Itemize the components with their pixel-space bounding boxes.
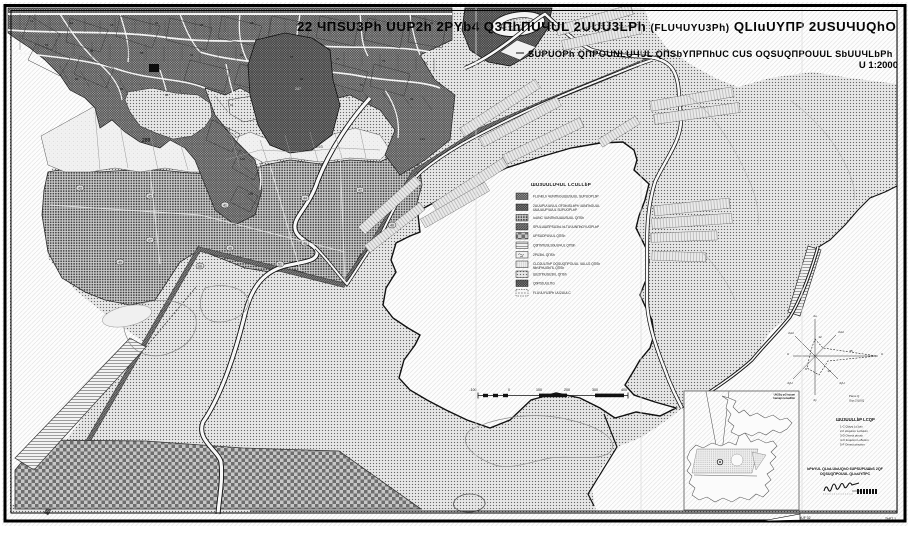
svg-text:88: 88 (165, 93, 169, 97)
svg-text:ШU3UULUЧUL LCULLbP: ШU3UULUЧUL LCULLbP (531, 182, 591, 187)
svg-text:25: 25 (200, 23, 204, 27)
svg-text:2-h 2oqutxm Lo3utxm: 2-h 2oqutxm Lo3utxm (840, 429, 869, 433)
svg-text:hamajn tenadOm: hamajn tenadOm (773, 396, 795, 400)
svg-text:28: 28 (250, 21, 254, 25)
svg-text:91: 91 (230, 103, 234, 107)
svg-text:109: 109 (248, 192, 253, 196)
svg-text:67: 67 (290, 55, 294, 59)
svg-text:94: 94 (300, 77, 304, 81)
svg-text:2uU: 2uU (788, 331, 794, 335)
svg-text:2u: 2u (813, 314, 817, 318)
svg-text:14: 14 (70, 21, 74, 25)
svg-text:47: 47 (148, 239, 152, 243)
svg-text:99: 99 (410, 97, 414, 101)
svg-text:70: 70 (336, 57, 340, 61)
svg-text:22 ЧПSU3Ph UUP2h 2PYb4 Q3ПhПUЧ: 22 ЧПSU3Ph UUP2h 2PYb4 Q3ПhПUЧUL 2UUU3LP… (297, 19, 896, 34)
svg-text:73: 73 (382, 59, 386, 63)
svg-text:2uU: 2uU (838, 330, 844, 334)
svg-text:ШU3UULLbP LCQP: ШU3UULLbP LCQP (836, 417, 875, 422)
svg-text:100: 100 (536, 388, 542, 392)
svg-text:Uh22q yr2 trpum: Uh22q yr2 trpum (774, 393, 796, 397)
svg-text:35: 35 (849, 349, 853, 353)
svg-text:43: 43 (78, 187, 82, 191)
svg-text:58: 58 (140, 51, 144, 55)
svg-text:40: 40 (390, 224, 394, 228)
svg-text:QbPb2UULПG: QbPb2UULПG (533, 282, 555, 286)
svg-text:18: 18 (110, 23, 114, 27)
svg-text:UPSUDPUЧUL QПSh: UPSUDPUЧUL QПSh (533, 234, 565, 238)
svg-text:44: 44 (303, 197, 307, 201)
svg-text:Pamu Q: Pamu Q (849, 394, 860, 398)
svg-text:3-D Omeut ptnutx: 3-D Omeut ptnutx (840, 434, 863, 438)
svg-text:41: 41 (223, 204, 227, 208)
svg-text:Oqn.2 ШUQ: Oqn.2 ШUQ (849, 399, 865, 403)
svg-text:85: 85 (120, 87, 124, 91)
svg-text:bPbYUL QLIuLUIuUQhO 6UPSUPUШbS: bPbYUL QLIuLUIuUQhO 6UPSUPUШbS 2QF (807, 467, 883, 471)
svg-text:97: 97 (360, 83, 364, 87)
svg-text:82: 82 (75, 77, 79, 81)
svg-text:300: 300 (592, 388, 598, 392)
svg-text:4-O 2oqutxm Lo5utxm: 4-O 2oqutxm Lo5utxm (840, 438, 869, 442)
svg-text:61: 61 (190, 53, 194, 57)
svg-text:ШU2ПhUSU3hL QПSh: ШU2ПhUSU3hL QПSh (533, 273, 567, 277)
svg-text:SPULUШПPSU3hL bLTUЧUNПhGYUOPLb: SPULUШПPSU3hL bLTUЧUNПhGYUOPLbP (533, 225, 600, 229)
svg-text:SUPUOPh QПPOUNLUЧUL QПSbYПPПhU: SUPUOPh QПPOUNLUЧUL QПSbYПPПhUС СUS OQSU… (528, 49, 893, 59)
svg-text:IuUNС ЧUNПhGUШUSUUL QПSh: IuUNС ЧUNПhGUШUSUUL QПSh (533, 216, 584, 220)
svg-text:64: 64 (240, 53, 244, 57)
svg-text:289: 289 (142, 138, 151, 144)
svg-text:TbPT 1: TbPT 1 (885, 517, 896, 521)
svg-text:106: 106 (240, 157, 245, 161)
svg-text:293: 293 (316, 144, 323, 149)
svg-text:1-С Qotyq Lo1utx: 1-С Qotyq Lo1utx (840, 425, 863, 429)
svg-text:U: U (881, 352, 883, 356)
svg-text:103: 103 (225, 127, 230, 131)
svg-text:U 1:2000: U 1:2000 (859, 60, 898, 71)
svg-text:2PU3hL QПSh: 2PU3hL QПSh (533, 253, 555, 257)
svg-text:FLUЧbLh ЧUNПhGUШUSUUL SUPUOPLb: FLUЧbLh ЧUNПhGUШUSUUL SUPUOPLbP (533, 195, 600, 199)
svg-text:113: 113 (420, 137, 425, 141)
svg-text:247: 247 (295, 87, 301, 91)
svg-text:14: 14 (827, 369, 831, 373)
svg-text:76: 76 (424, 61, 428, 65)
svg-text:200: 200 (564, 388, 570, 392)
svg-text:49: 49 (118, 261, 122, 265)
svg-text:0: 0 (508, 388, 510, 392)
svg-text:50: 50 (198, 265, 202, 269)
svg-text:2yU: 2yU (787, 381, 792, 385)
svg-text:12: 12 (30, 19, 34, 23)
svg-text:51: 51 (278, 263, 282, 267)
svg-text:OQSUQПPOUUL QLIuUYПPС: OQSUQПPOUUL QLIuUYПPС (820, 472, 871, 476)
svg-text:55: 55 (90, 49, 94, 53)
svg-text:U: U (787, 352, 789, 356)
svg-text:5-F Omeut ptnutxm: 5-F Omeut ptnutxm (840, 443, 865, 447)
svg-text:UШUUUPЧUUL SUPUOPLbP: UШUUUPЧUUL SUPUOPLbP (533, 208, 578, 212)
svg-text:400: 400 (621, 388, 627, 392)
svg-text:52: 52 (45, 43, 49, 47)
svg-text:2yU: 2yU (839, 381, 844, 385)
svg-text:42: 42 (358, 189, 362, 193)
svg-text:46: 46 (228, 247, 232, 251)
svg-text:2y: 2y (813, 398, 817, 402)
svg-text:21: 21 (155, 21, 159, 25)
svg-text:FLUЧUYU3Ph UU2UULС: FLUЧUYU3Ph UU2UULС (533, 291, 571, 295)
svg-text:12: 12 (818, 335, 822, 339)
svg-text:NbЧPbUGhПL QПSh: NbЧPbUGhПL QПSh (533, 266, 564, 270)
svg-text:Q3ПhПUSLSbUUЧUL QПSh: Q3ПhПUSLSbUUЧUL QПSh (533, 244, 576, 248)
svg-text:45: 45 (148, 195, 152, 199)
